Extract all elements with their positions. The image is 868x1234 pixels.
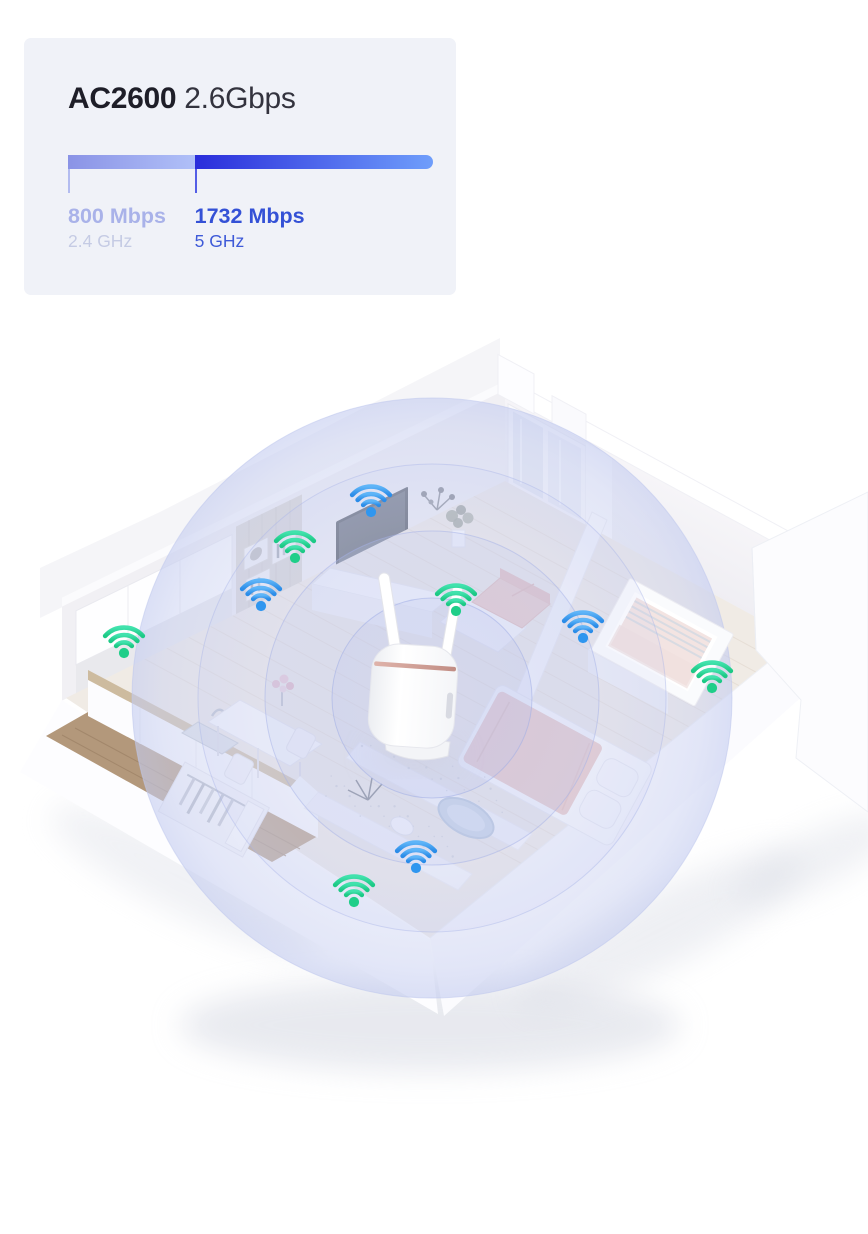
speed-value: 2.6Gbps [184, 82, 295, 115]
speed-bar-track [68, 155, 433, 169]
speed-bar: 800 Mbps 2.4 GHz 1732 Mbps 5 GHz [68, 155, 433, 203]
spec-card: AC26002.6Gbps 800 Mbps 2.4 GHz 1732 Mbps… [24, 38, 456, 295]
tick-2g [68, 169, 70, 193]
band-5g-freq: 5 GHz [195, 229, 305, 254]
band-5g: 1732 Mbps 5 GHz [195, 203, 305, 254]
band-2g-freq: 2.4 GHz [68, 229, 166, 254]
band-2g-speed: 800 Mbps [68, 203, 166, 229]
bar-segment-5g [195, 155, 433, 169]
router-body [367, 642, 460, 750]
model-name: AC2600 [68, 82, 176, 115]
card-title: AC26002.6Gbps [68, 82, 296, 116]
band-2g: 800 Mbps 2.4 GHz [68, 203, 166, 254]
band-5g-speed: 1732 Mbps [195, 203, 305, 229]
tick-5g [195, 169, 197, 193]
bar-segment-2g [68, 155, 195, 169]
page: { "card": { "background": "#f0f2f8", "ti… [0, 0, 868, 1234]
